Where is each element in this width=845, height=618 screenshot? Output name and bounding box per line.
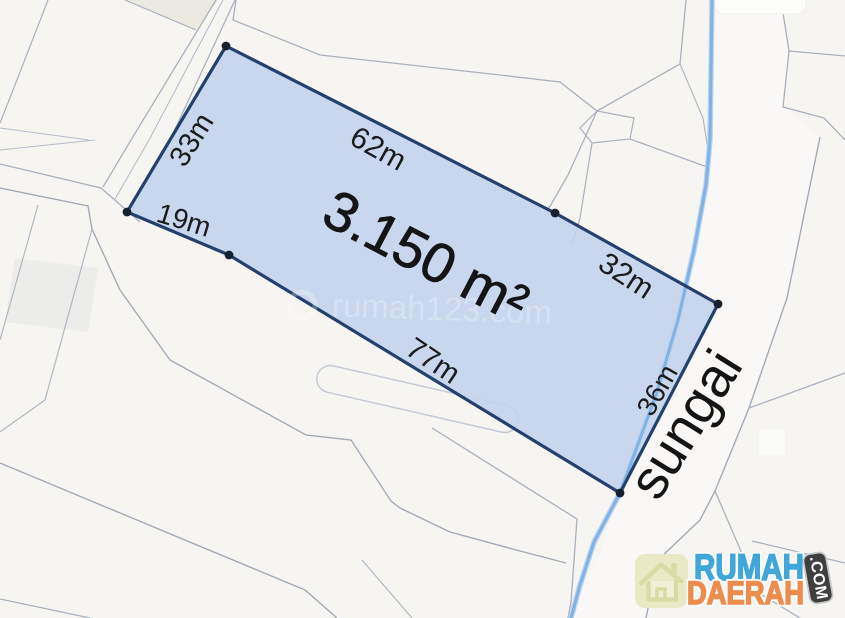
svg-text:DAERAH: DAERAH (687, 575, 804, 611)
